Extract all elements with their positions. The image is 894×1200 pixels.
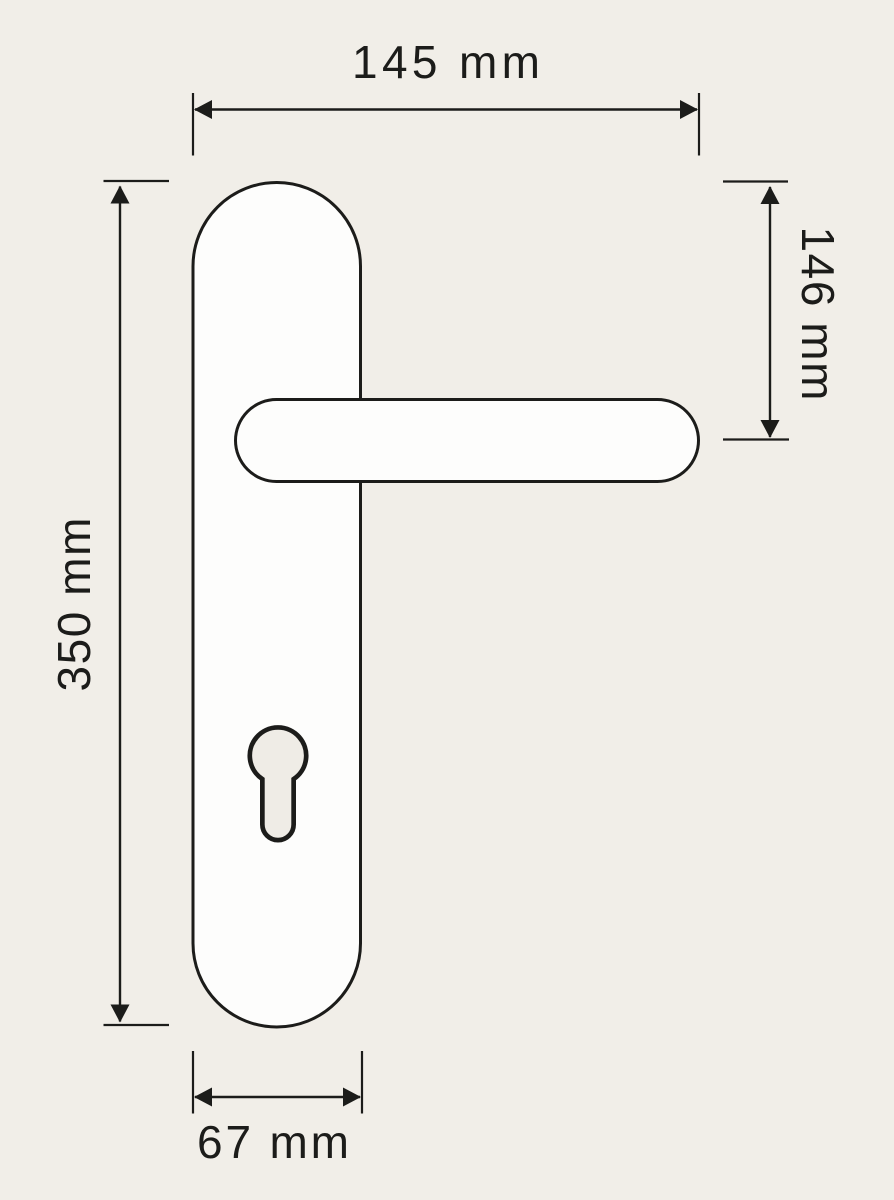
svg-text:67 mm: 67 mm xyxy=(197,1116,349,1168)
